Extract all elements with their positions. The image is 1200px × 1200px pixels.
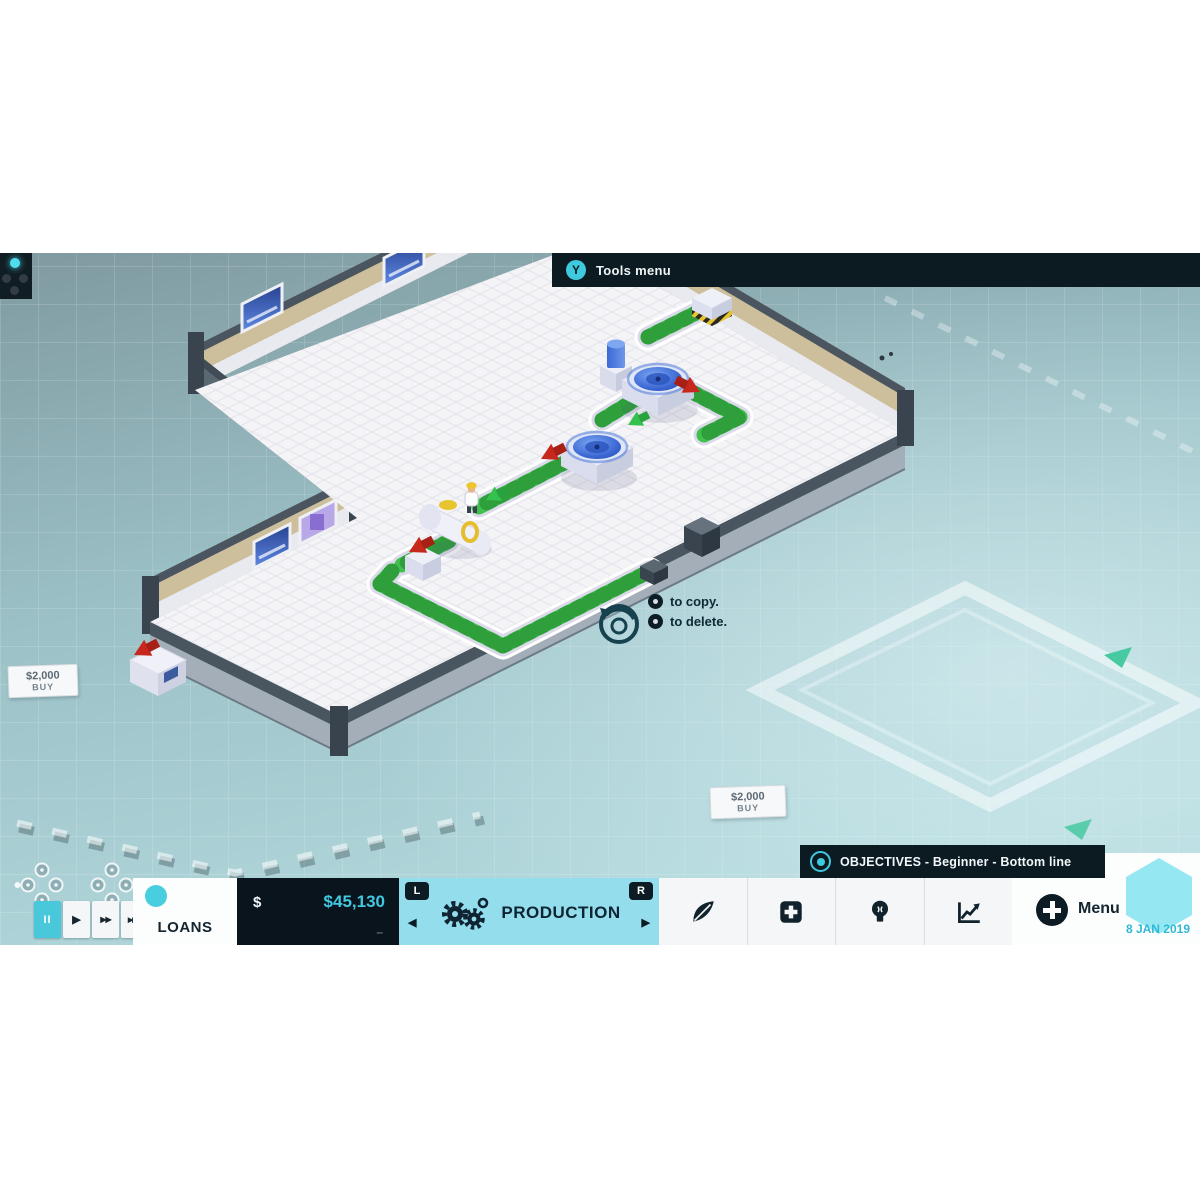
tab-ingredients[interactable] — [659, 878, 748, 945]
x-button-icon — [2, 274, 11, 283]
fast-forward-button[interactable]: ▶▶ — [92, 901, 119, 938]
rotate-icon — [596, 601, 642, 647]
money-panel: $ $45,130 – — [237, 878, 399, 945]
loans-label: LOANS — [133, 919, 237, 936]
copy-hint-row: to copy. — [648, 591, 727, 611]
objectives-bar[interactable]: OBJECTIVES - Beginner - Bottom line — [800, 845, 1105, 878]
loans-button[interactable]: LOANS — [133, 878, 237, 945]
game-speed-controls: II ▶ ▶▶ ▶▶▶ — [34, 901, 148, 938]
b-button-icon — [19, 274, 28, 283]
buy-plot-label[interactable]: $2,000 BUY — [709, 785, 786, 820]
gamepad-button-icon — [648, 614, 663, 629]
gamepad-face-buttons-hint — [0, 253, 32, 299]
plus-circle-icon — [1036, 894, 1068, 926]
copy-hint-label: to copy. — [670, 594, 719, 609]
hud-tab-strip — [659, 878, 1012, 945]
copy-delete-tooltip: to copy. to delete. — [596, 591, 756, 661]
game-screenshot: Y Tools menu to copy. — [0, 253, 1200, 945]
gamepad-y-button-icon: Y — [566, 260, 586, 280]
wall-post — [188, 332, 204, 394]
gamepad-hint-circle-icon — [145, 885, 167, 907]
product-image: Y Tools menu to copy. — [0, 0, 1200, 1200]
tab-cures[interactable] — [748, 878, 837, 945]
y-button-highlight-icon — [10, 258, 20, 268]
buy-plot-label[interactable]: $2,000 BUY — [7, 664, 78, 698]
game-date: 8 JAN 2019 — [1126, 922, 1190, 936]
gamepad-button-icon — [648, 594, 663, 609]
buy-action-label: BUY — [719, 802, 777, 814]
buy-action-label: BUY — [17, 681, 69, 693]
plus-square-icon — [776, 897, 806, 927]
a-button-icon — [10, 286, 19, 295]
menu-panel[interactable]: Menu 8 JAN 2019 — [1012, 878, 1200, 945]
gears-icon — [437, 895, 493, 931]
objectives-label: OBJECTIVES - Beginner - Bottom line — [840, 855, 1071, 869]
chart-icon — [953, 897, 983, 927]
play-button[interactable]: ▶ — [63, 901, 90, 938]
lightbulb-icon — [865, 897, 895, 927]
tab-research[interactable] — [836, 878, 925, 945]
menu-label: Menu — [1078, 900, 1120, 918]
production-label: PRODUCTION — [501, 903, 620, 923]
tools-menu-bar[interactable]: Y Tools menu — [552, 253, 1200, 287]
delete-hint-row: to delete. — [648, 611, 727, 631]
delete-hint-label: to delete. — [670, 614, 727, 629]
balance-value: $45,130 — [324, 892, 385, 912]
pause-button[interactable]: II — [34, 901, 61, 938]
leaf-icon — [688, 897, 718, 927]
balance-delta: – — [376, 925, 383, 939]
objectives-icon — [810, 851, 831, 872]
tab-business[interactable] — [925, 878, 1013, 945]
tab-production[interactable]: L R ◀ ▶ PRODUCTION — [399, 878, 659, 945]
tools-menu-label: Tools menu — [596, 263, 671, 278]
currency-symbol: $ — [253, 894, 261, 911]
